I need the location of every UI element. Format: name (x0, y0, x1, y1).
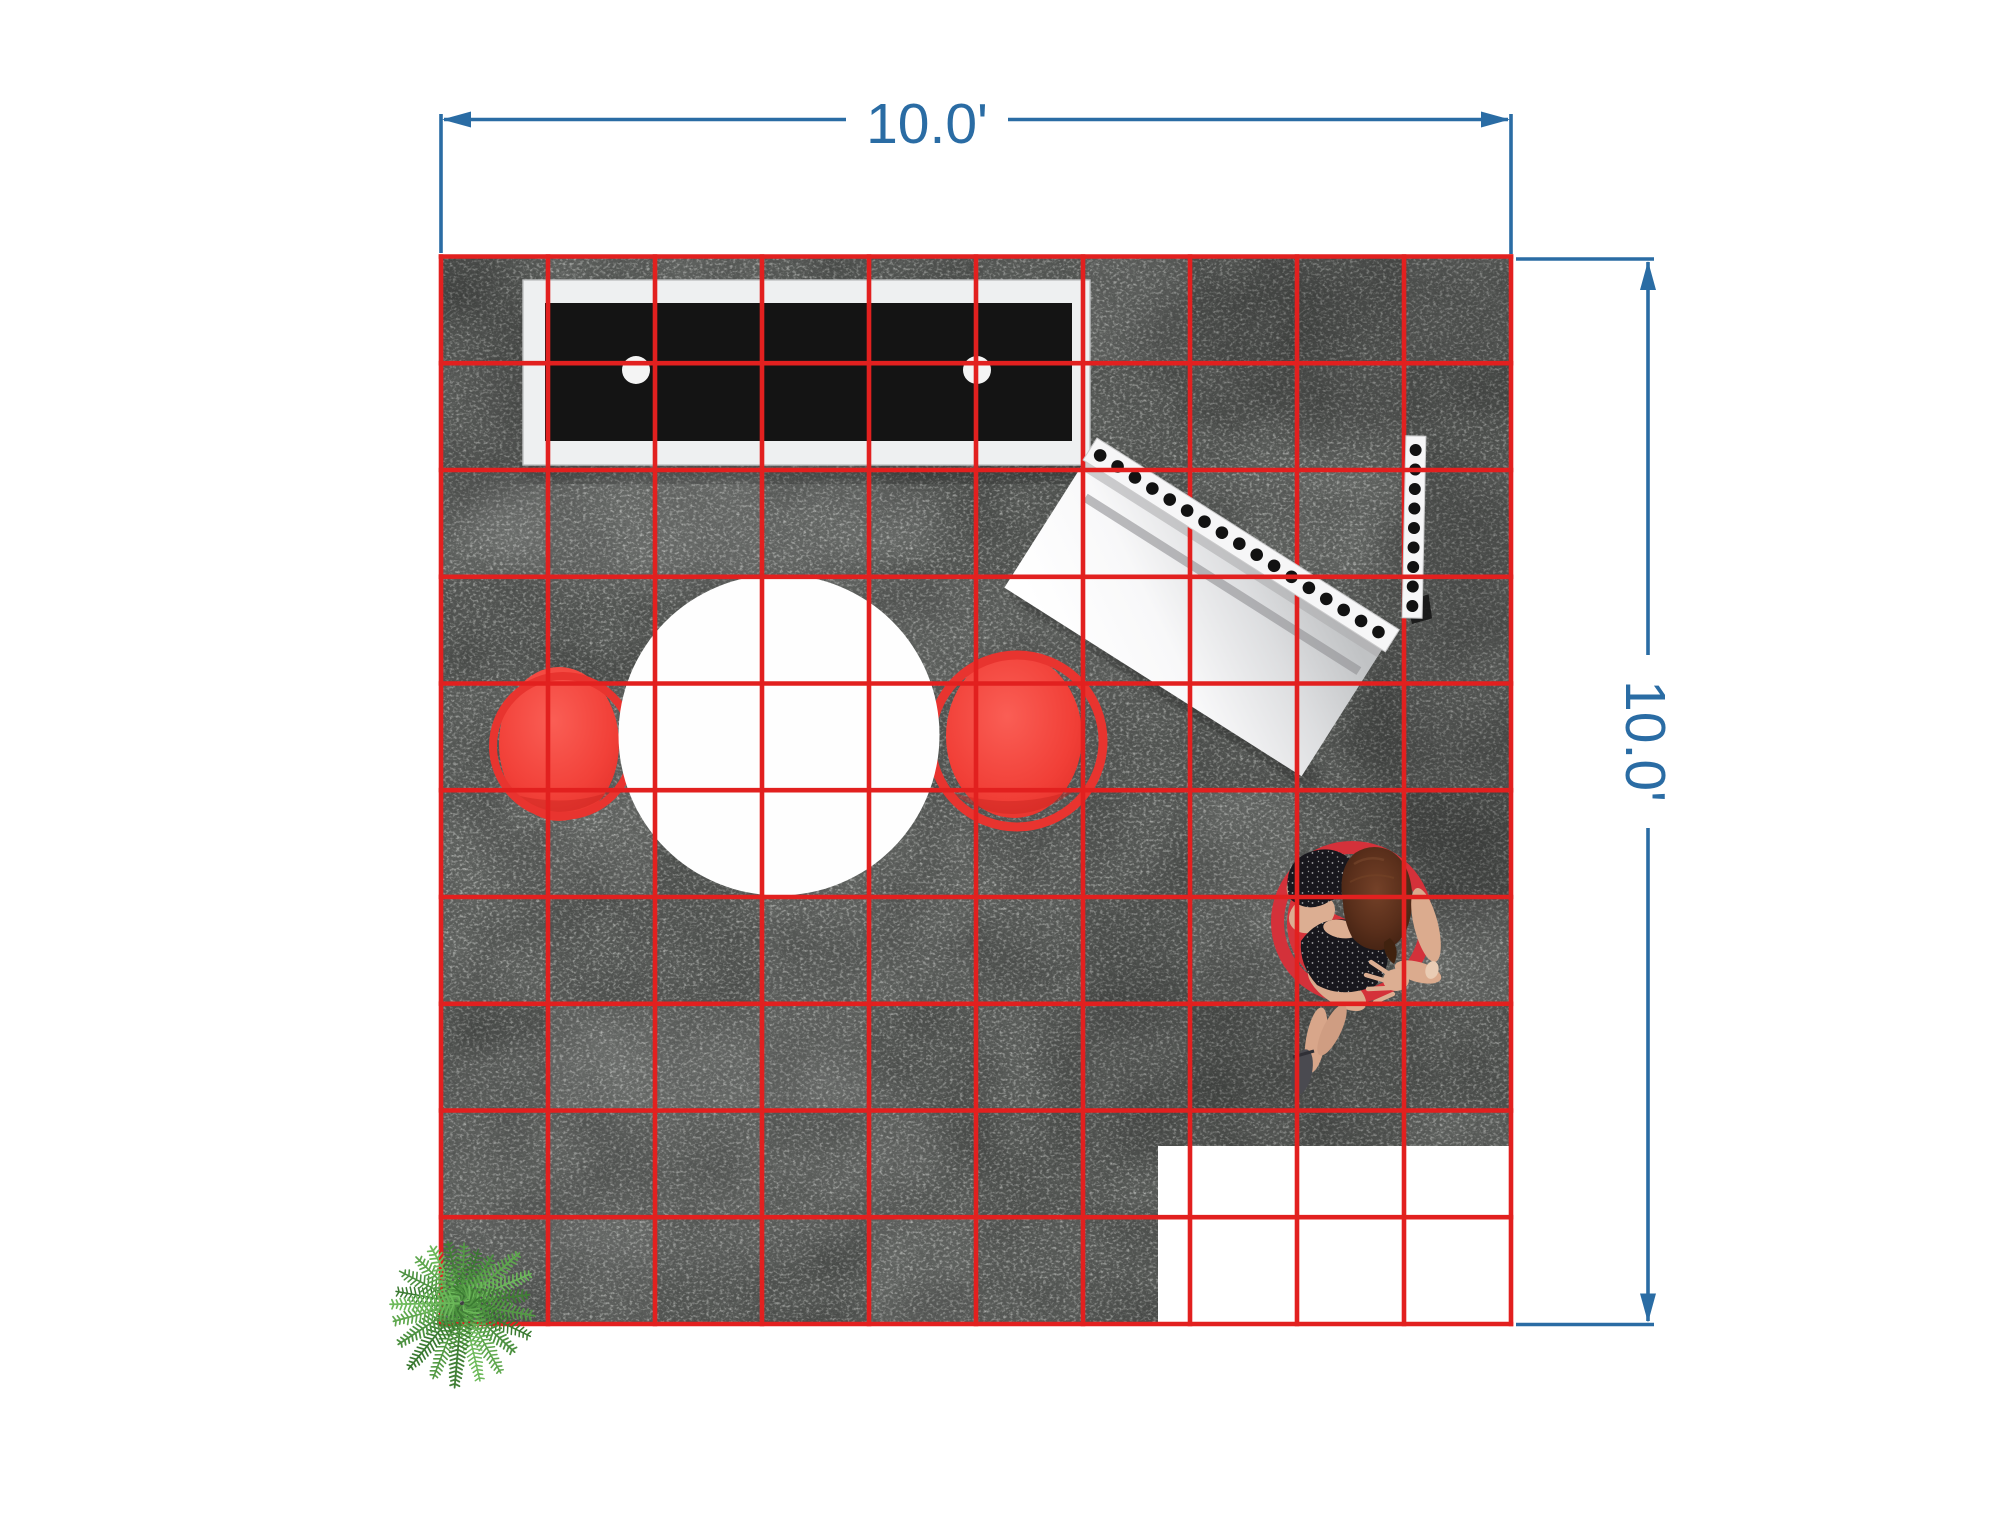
svg-text:10.0': 10.0' (1613, 680, 1677, 802)
svg-text:10.0': 10.0' (866, 92, 988, 156)
